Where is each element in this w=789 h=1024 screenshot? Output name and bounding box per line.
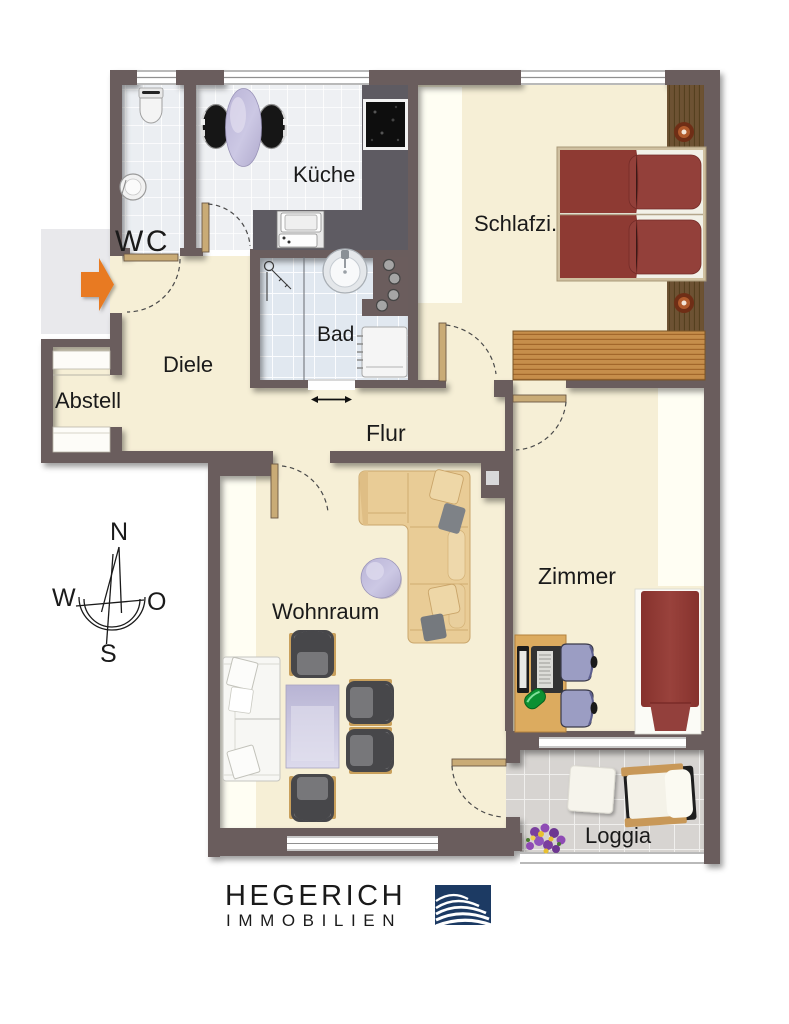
svg-text:IMMOBILIEN: IMMOBILIEN [226, 911, 402, 930]
svg-text:Schlafzi.: Schlafzi. [474, 211, 557, 236]
svg-text:WC: WC [115, 225, 170, 258]
svg-text:N: N [110, 518, 128, 546]
svg-text:HEGERICH: HEGERICH [225, 880, 406, 912]
svg-text:Küche: Küche [293, 162, 355, 187]
svg-text:Zimmer: Zimmer [538, 563, 616, 589]
svg-text:Bad: Bad [317, 323, 354, 346]
svg-text:Diele: Diele [163, 352, 213, 377]
svg-text:W: W [52, 584, 76, 612]
svg-text:Wohnraum: Wohnraum [272, 599, 379, 624]
svg-text:Flur: Flur [366, 420, 406, 446]
svg-text:Loggia: Loggia [585, 823, 652, 848]
svg-text:S: S [100, 640, 117, 668]
svg-text:O: O [147, 588, 166, 616]
svg-text:Abstell: Abstell [55, 388, 121, 413]
